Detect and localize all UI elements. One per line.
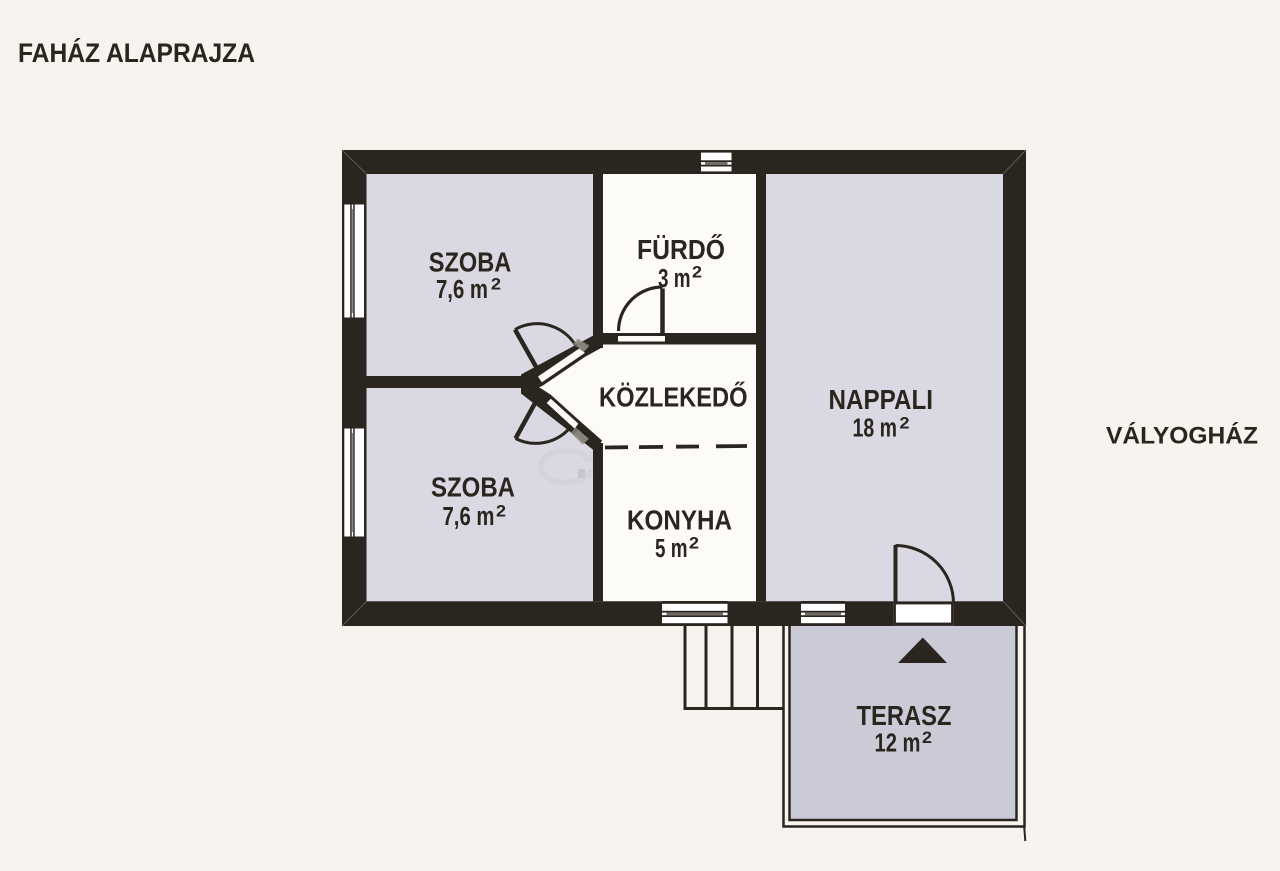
svg-text:5 m: 5 m — [655, 535, 688, 563]
svg-text:KONYHA: KONYHA — [627, 505, 732, 536]
svg-text:7,6 m: 7,6 m — [436, 276, 488, 304]
svg-text:7,6 m: 7,6 m — [443, 503, 495, 531]
svg-text:FÜRDŐ: FÜRDŐ — [637, 234, 725, 265]
svg-text:2: 2 — [689, 534, 699, 553]
svg-text:2: 2 — [692, 263, 702, 282]
svg-text:2: 2 — [491, 275, 501, 294]
svg-text:12 m: 12 m — [875, 730, 921, 758]
svg-text:VÁLYOGHÁZ: VÁLYOGHÁZ — [1106, 422, 1258, 450]
svg-text:TERASZ: TERASZ — [857, 700, 952, 731]
svg-text:KÖZLEKEDŐ: KÖZLEKEDŐ — [599, 382, 748, 413]
svg-text:2: 2 — [922, 728, 932, 747]
svg-text:3 m: 3 m — [658, 265, 691, 293]
svg-text:SZOBA: SZOBA — [431, 471, 515, 502]
svg-text:SZOBA: SZOBA — [429, 247, 512, 278]
svg-text:18 m: 18 m — [853, 414, 898, 442]
svg-text:NAPPALI: NAPPALI — [829, 384, 934, 415]
svg-text:2: 2 — [900, 414, 910, 433]
svg-text:2: 2 — [496, 502, 506, 521]
svg-text:FAHÁZ ALAPRAJZA: FAHÁZ ALAPRAJZA — [18, 37, 255, 68]
